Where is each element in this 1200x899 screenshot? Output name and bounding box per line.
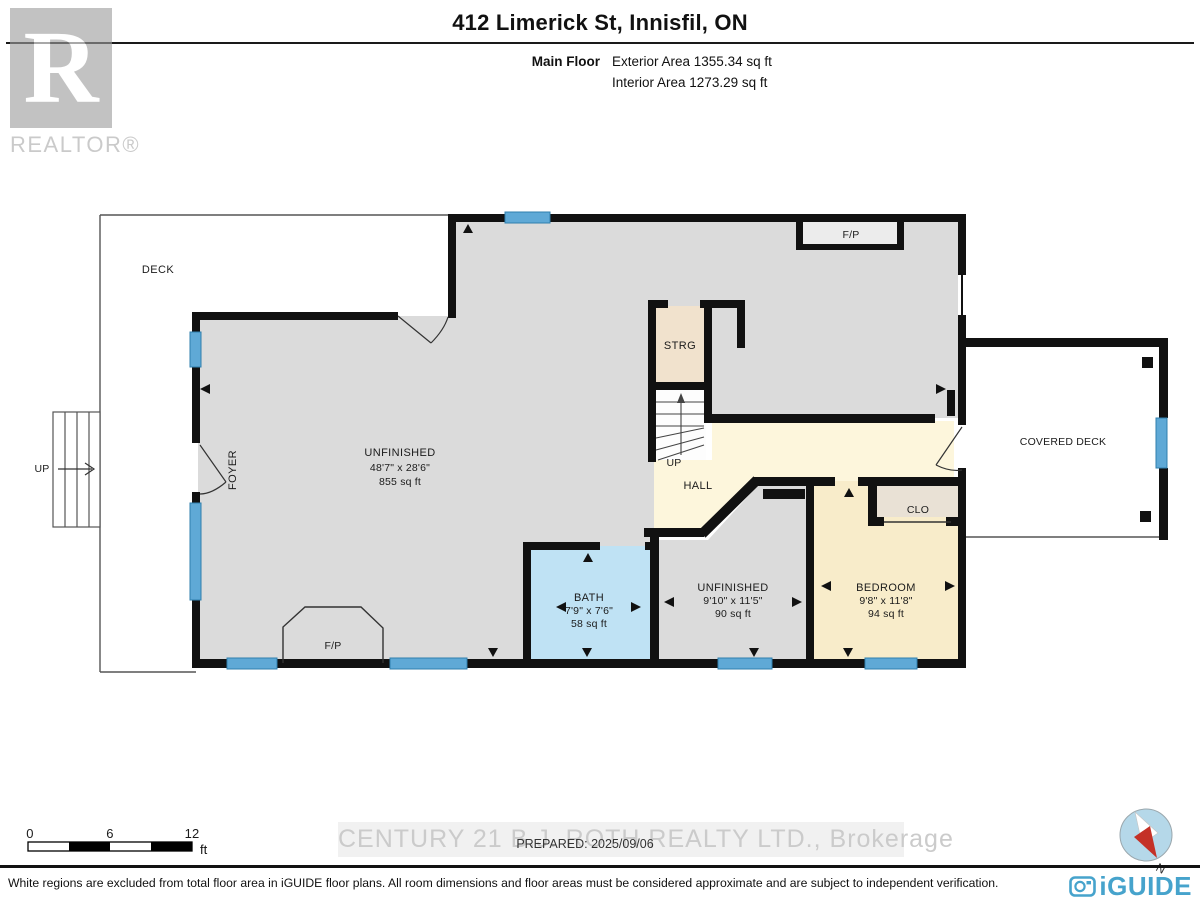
disclaimer-text: White regions are excluded from total fl… — [8, 876, 998, 890]
label-deck-stairs-up: UP — [35, 463, 50, 475]
room-label-hall: HALL — [683, 480, 712, 492]
scale-unit: ft — [200, 842, 208, 857]
room-label-unfinished-main: UNFINISHED — [364, 447, 435, 459]
exterior-stairs — [53, 412, 100, 527]
scale-tick-6: 6 — [106, 826, 113, 841]
area-bedroom: 94 sq ft — [868, 608, 904, 620]
dims-unfinished-small: 9'10" x 11'5" — [703, 595, 762, 607]
iguide-logo: iGUIDE — [1069, 871, 1192, 899]
area-unfinished-small: 90 sq ft — [715, 608, 751, 620]
footer-divider — [0, 865, 1200, 868]
dims-unfinished-main: 48'7" x 28'6" — [370, 462, 430, 474]
room-label-fp-bottom: F/P — [325, 640, 342, 652]
room-label-fp-top: F/P — [843, 229, 860, 241]
prepared-date: PREPARED: 2025/09/06 — [440, 837, 730, 851]
room-label-foyer: FOYER — [227, 450, 239, 490]
area-bath: 58 sq ft — [571, 618, 607, 630]
dims-bath: 7'9" x 7'6" — [565, 605, 613, 617]
iguide-camera-icon — [1069, 875, 1096, 898]
room-label-bedroom: BEDROOM — [856, 582, 916, 594]
floorplan-page: R REALTOR® 412 Limerick St, Innisfil, ON… — [0, 0, 1200, 899]
room-label-covered-deck: COVERED DECK — [1020, 436, 1106, 448]
label-stairs-up: UP — [667, 457, 682, 469]
floor-plan-drawing: DECK F/P STRG UP UP HALL FOYER UNFINISHE… — [0, 0, 1200, 899]
room-label-deck: DECK — [142, 264, 174, 276]
scale-bar: 0 6 12 ft — [26, 826, 207, 857]
room-label-bath: BATH — [574, 592, 604, 604]
scale-tick-0: 0 — [26, 826, 33, 841]
room-label-strg: STRG — [664, 340, 696, 352]
room-label-clo: CLO — [907, 504, 929, 516]
area-unfinished-main: 855 sq ft — [379, 476, 421, 488]
scale-tick-12: 12 — [185, 826, 200, 841]
dims-bedroom: 9'8" x 11'8" — [859, 595, 912, 607]
room-label-unfinished-small: UNFINISHED — [697, 582, 768, 594]
iguide-brand-text: iGUIDE — [1099, 871, 1192, 899]
